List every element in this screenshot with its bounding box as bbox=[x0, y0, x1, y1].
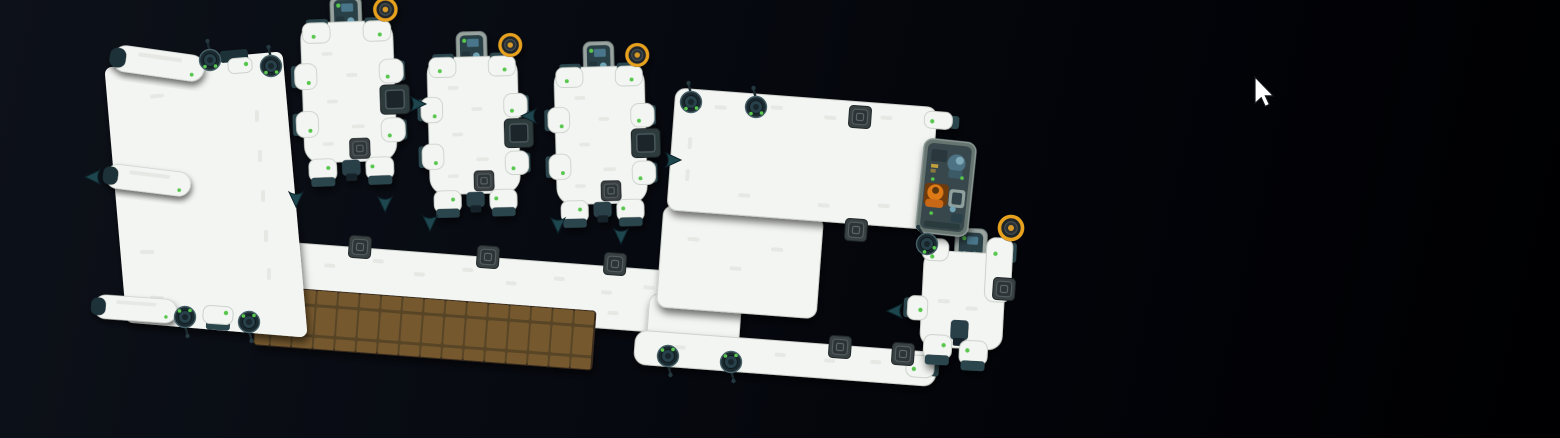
thruster-cone bbox=[551, 218, 565, 233]
astronaut-crew bbox=[923, 182, 949, 208]
hatch[interactable] bbox=[476, 245, 499, 268]
game-viewport bbox=[0, 0, 1560, 438]
thruster-cone bbox=[887, 304, 902, 318]
airlock-bay-module[interactable] bbox=[915, 138, 977, 237]
hatch[interactable] bbox=[348, 235, 371, 258]
turret[interactable] bbox=[681, 81, 702, 113]
shuttle-1[interactable] bbox=[288, 0, 412, 188]
radar-dish[interactable] bbox=[998, 215, 1025, 242]
hatch[interactable] bbox=[603, 252, 626, 275]
shuttle-3[interactable] bbox=[542, 40, 662, 228]
turret[interactable] bbox=[200, 39, 221, 71]
platform-mid[interactable] bbox=[656, 205, 823, 319]
hatch[interactable] bbox=[992, 277, 1015, 300]
hatch[interactable] bbox=[848, 105, 871, 128]
hatch[interactable] bbox=[828, 335, 851, 358]
turret[interactable] bbox=[261, 45, 282, 77]
thruster-cone bbox=[423, 216, 437, 231]
mouse-cursor bbox=[1255, 77, 1273, 106]
hatch[interactable] bbox=[891, 342, 914, 365]
platform-upper[interactable] bbox=[667, 88, 960, 231]
hatch[interactable] bbox=[844, 218, 867, 241]
turret[interactable] bbox=[721, 352, 742, 384]
turret[interactable] bbox=[175, 307, 196, 339]
shuttle-2[interactable] bbox=[415, 30, 535, 218]
thruster-cone bbox=[85, 170, 100, 184]
thruster-cone bbox=[614, 229, 628, 244]
turret[interactable] bbox=[658, 346, 679, 378]
thruster-cone bbox=[378, 197, 392, 212]
turret[interactable] bbox=[746, 86, 767, 118]
space-station bbox=[85, 0, 1025, 387]
